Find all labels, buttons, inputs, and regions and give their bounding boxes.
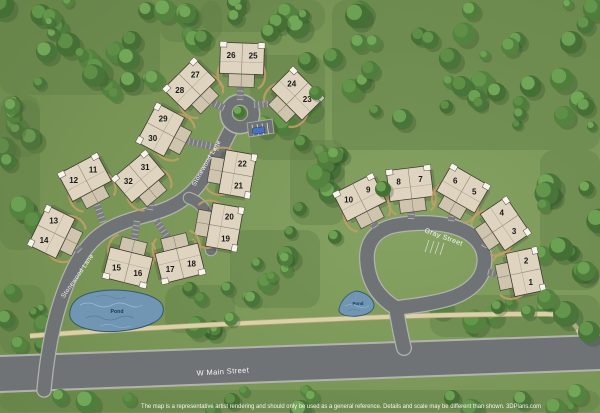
lot-number: 31: [141, 163, 150, 172]
site-plan: 2625282724233029121132311413222120191615…: [0, 0, 600, 413]
lot-number: 18: [187, 260, 196, 269]
lot-number: 28: [175, 86, 184, 95]
pond-label-large: Pond: [111, 309, 124, 315]
lot-number: 20: [225, 213, 234, 222]
lot-number: 6: [453, 176, 458, 185]
lot-number: 24: [287, 80, 296, 89]
lot-number: 12: [69, 176, 78, 185]
lot-number: 15: [112, 264, 121, 273]
site-plan-map: 2625282724233029121132311413222120191615…: [0, 0, 600, 413]
lot-number: 29: [159, 114, 168, 123]
lot-number: 32: [124, 177, 133, 186]
lot-number: 27: [191, 71, 200, 80]
lot-number: 2: [524, 256, 529, 265]
lot-number: 14: [40, 236, 49, 245]
lot-number: 5: [472, 187, 477, 196]
lot-number: 8: [396, 178, 401, 187]
lot-number: 4: [500, 209, 505, 218]
lot-number: 7: [418, 175, 423, 184]
lot-number: 1: [528, 278, 533, 287]
lot-number: 22: [238, 160, 247, 169]
lot-number: 10: [344, 196, 353, 205]
lot-number: 17: [166, 265, 175, 274]
lot-number: 9: [366, 186, 371, 195]
lot-number: 26: [227, 51, 236, 60]
lot-number: 25: [249, 52, 258, 61]
lot-number: 21: [234, 181, 243, 190]
lot-number: 3: [512, 227, 517, 236]
lot-number: 16: [133, 269, 142, 278]
lot-number: 11: [89, 166, 98, 175]
lot-number: 30: [148, 134, 157, 143]
disclaimer-text: The map is a representative artist rende…: [141, 403, 541, 410]
lot-number: 19: [221, 234, 230, 243]
lot-number: 13: [49, 216, 58, 225]
pond-label-small: Pond: [353, 301, 364, 306]
